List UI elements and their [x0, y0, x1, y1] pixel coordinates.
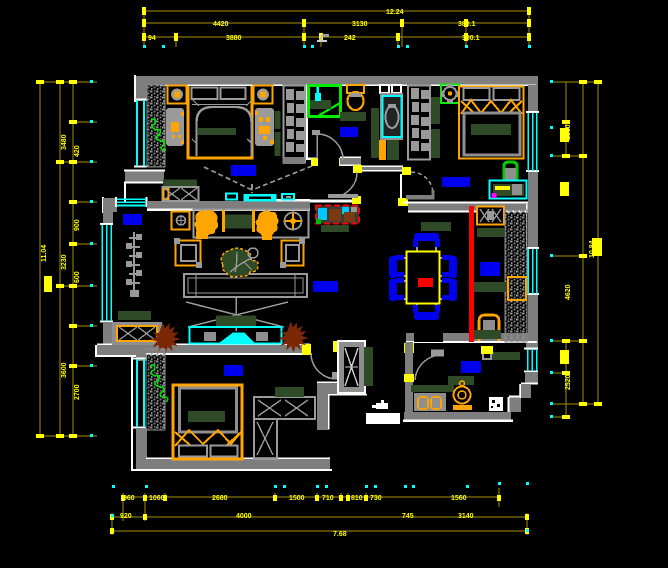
- svg-text:3140: 3140: [458, 513, 474, 520]
- svg-text:710: 710: [322, 495, 334, 502]
- svg-text:94: 94: [148, 35, 156, 42]
- svg-text:4000: 4000: [236, 513, 252, 520]
- svg-text:12.24: 12.24: [386, 9, 404, 16]
- svg-text:1500: 1500: [289, 495, 305, 502]
- svg-text:900: 900: [74, 219, 81, 231]
- svg-text:4420: 4420: [213, 21, 229, 28]
- svg-text:2680: 2680: [212, 495, 228, 502]
- svg-text:7.68: 7.68: [333, 531, 347, 538]
- svg-text:3600: 3600: [61, 362, 68, 378]
- svg-text:745: 745: [402, 513, 414, 520]
- svg-text:600: 600: [74, 271, 81, 283]
- svg-text:3230: 3230: [61, 254, 68, 270]
- svg-text:3130: 3130: [352, 21, 368, 28]
- svg-text:1060: 1060: [149, 495, 165, 502]
- svg-text:11.04: 11.04: [41, 245, 48, 262]
- svg-text:920: 920: [120, 513, 132, 520]
- svg-text:810: 810: [351, 495, 363, 502]
- svg-text:380.1: 380.1: [462, 35, 480, 42]
- svg-text:3880: 3880: [226, 35, 242, 42]
- svg-text:1560: 1560: [451, 495, 467, 502]
- svg-text:420: 420: [74, 145, 81, 157]
- svg-text:2520: 2520: [565, 374, 572, 390]
- svg-text:960: 960: [123, 495, 135, 502]
- svg-text:242: 242: [344, 35, 356, 42]
- svg-text:730: 730: [370, 495, 382, 502]
- svg-text:3480: 3480: [61, 134, 68, 150]
- svg-text:4620: 4620: [565, 284, 572, 300]
- svg-text:380.1: 380.1: [458, 21, 476, 28]
- svg-text:2700: 2700: [74, 384, 81, 400]
